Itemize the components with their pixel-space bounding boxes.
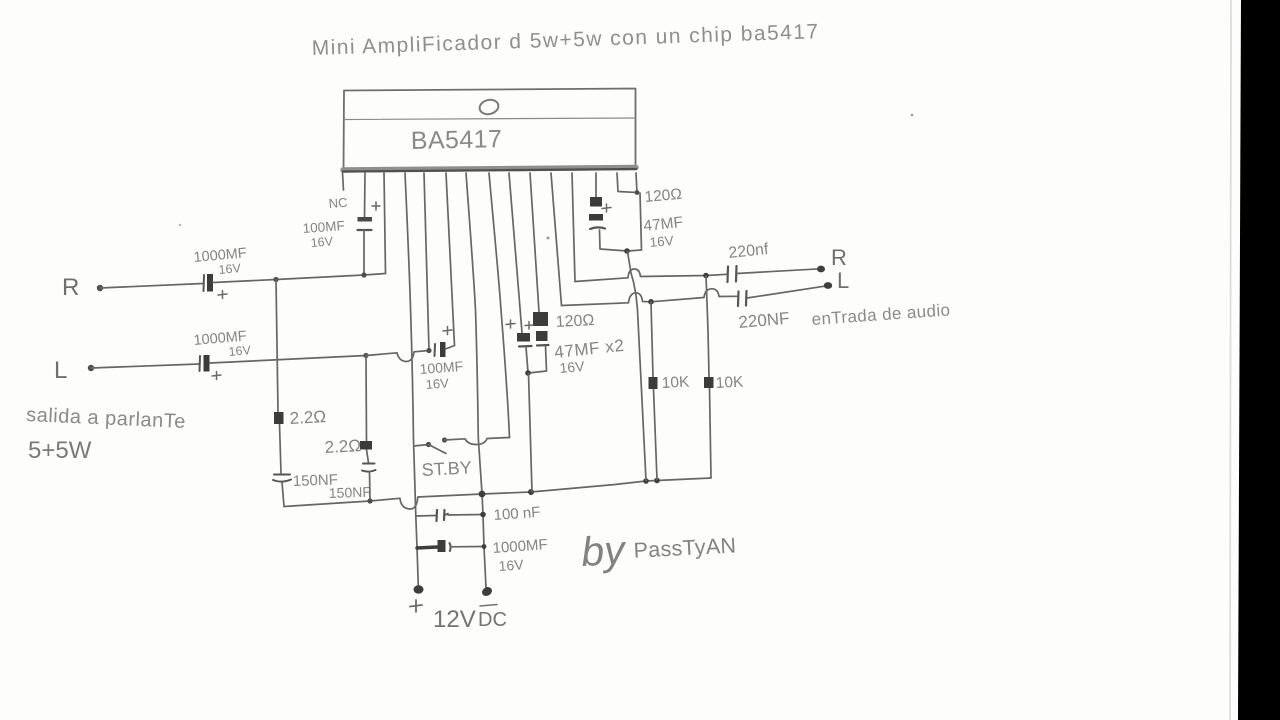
svg-text:10K: 10K (715, 374, 744, 392)
svg-text:16V: 16V (649, 233, 674, 250)
svg-text:16V: 16V (425, 375, 449, 392)
svg-text:BA5417: BA5417 (411, 125, 503, 155)
svg-text:120Ω: 120Ω (644, 186, 683, 206)
svg-text:12V: 12V (433, 606, 476, 633)
svg-text:L: L (837, 268, 849, 293)
svg-text:150NF: 150NF (329, 484, 372, 501)
svg-text:100 nF: 100 nF (493, 504, 541, 524)
svg-text:R: R (831, 245, 847, 270)
svg-text:16V: 16V (228, 343, 252, 359)
svg-text:2.2Ω: 2.2Ω (289, 407, 326, 428)
svg-text:L: L (54, 357, 67, 384)
svg-text:100MF: 100MF (302, 218, 345, 236)
svg-text:16V: 16V (310, 234, 334, 250)
svg-text:10K: 10K (661, 374, 690, 392)
svg-text:16V: 16V (218, 261, 242, 277)
svg-text:NC: NC (328, 195, 348, 211)
svg-text:2.2Ω: 2.2Ω (324, 436, 361, 457)
svg-text:DC: DC (478, 609, 507, 631)
svg-text:120Ω: 120Ω (555, 312, 595, 331)
svg-text:by: by (580, 527, 628, 575)
svg-text:16V: 16V (498, 556, 525, 574)
svg-text:16V: 16V (559, 358, 586, 376)
svg-text:100MF: 100MF (419, 358, 464, 377)
svg-text:R: R (62, 274, 79, 301)
svg-text:ST.BY: ST.BY (421, 457, 472, 480)
svg-text:5+5W: 5+5W (28, 437, 92, 464)
